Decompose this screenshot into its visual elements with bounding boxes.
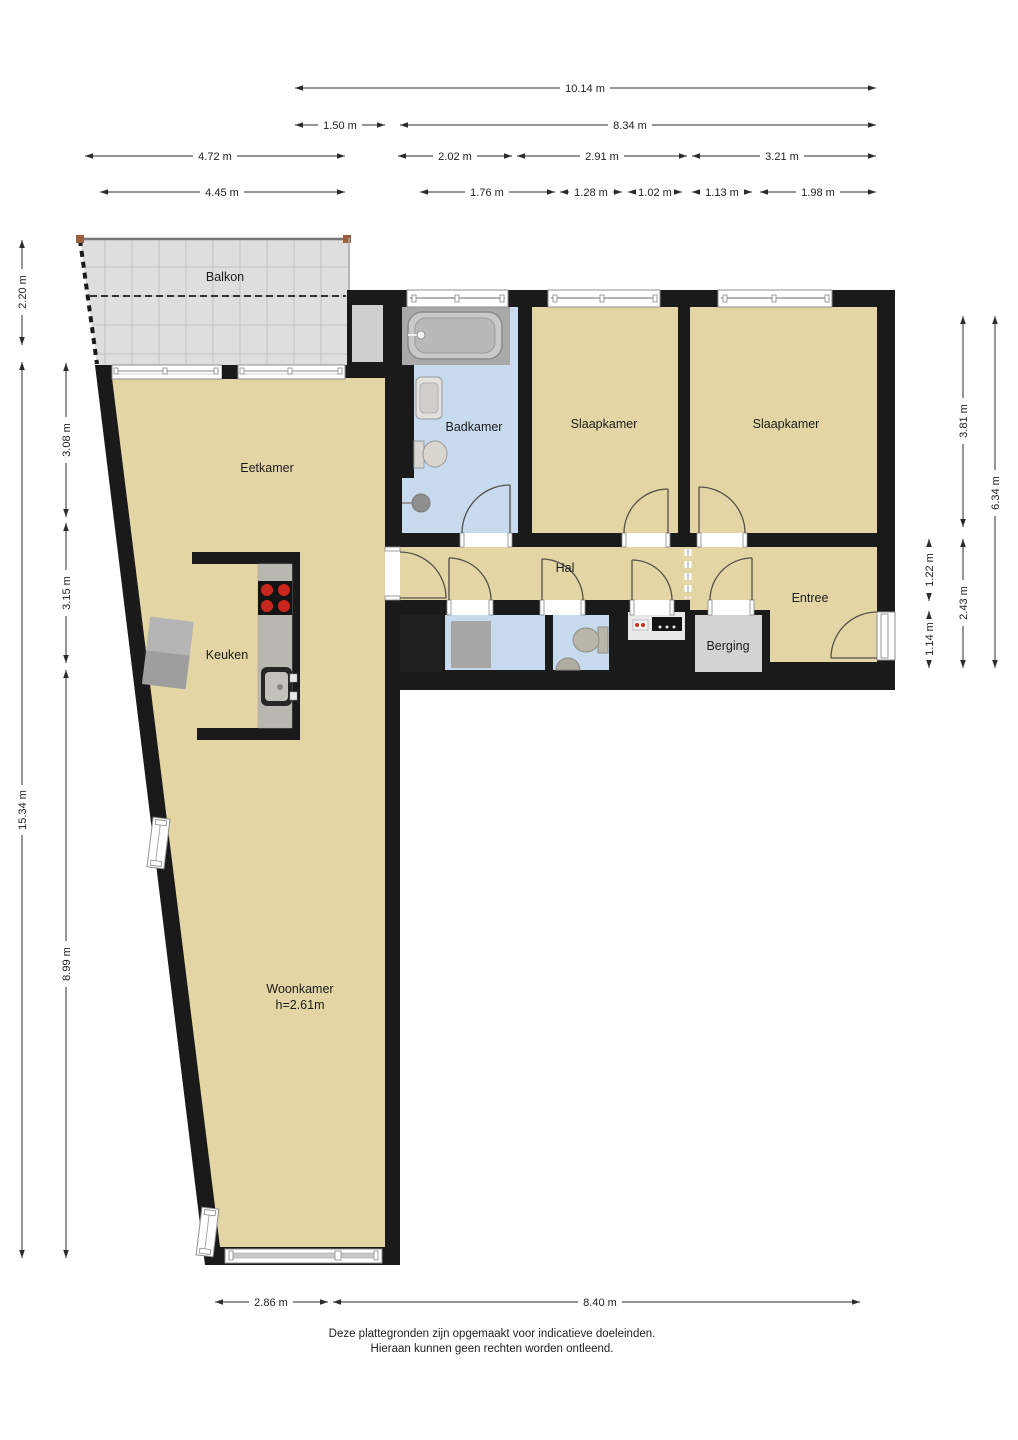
bathtub-faucet bbox=[417, 331, 425, 339]
dimension-arrowhead bbox=[19, 1250, 25, 1258]
dimension-arrowhead bbox=[19, 362, 25, 370]
dimension-label: 3.21 m bbox=[765, 151, 799, 163]
floorplan-page: Balkon Eetkamer Badkamer Slaapkamer Slaa… bbox=[0, 0, 1018, 1440]
kitchen-sink-basin bbox=[265, 672, 288, 701]
dimension-arrowhead bbox=[926, 660, 932, 668]
dimension-arrowhead bbox=[868, 122, 876, 128]
dimension-label: 10.14 m bbox=[565, 83, 605, 95]
room-label-slaapkamer-rechts: Slaapkamer bbox=[753, 417, 820, 431]
stove-burner bbox=[261, 600, 273, 612]
dimension-label: 8.99 m bbox=[61, 947, 73, 981]
dimension-arrowhead bbox=[674, 189, 682, 195]
dimension-label: 1.14 m bbox=[924, 622, 936, 656]
dimension-arrowhead bbox=[614, 189, 622, 195]
dimension-arrowhead bbox=[100, 189, 108, 195]
kitchen-sink-drain bbox=[277, 684, 283, 690]
dimension-label: 1.02 m bbox=[638, 187, 672, 199]
room-label-balkon: Balkon bbox=[206, 270, 244, 284]
disclaimer-line-2: Hieraan kunnen geen rechten worden ontle… bbox=[371, 1343, 614, 1355]
dimension-label: 2.91 m bbox=[585, 151, 619, 163]
entry-floor-lower bbox=[770, 610, 877, 662]
toilet-bowl bbox=[423, 441, 447, 467]
floorplan-svg: Balkon Eetkamer Badkamer Slaapkamer Slaa… bbox=[0, 0, 1018, 1440]
dimensions-left: 2.20 m 3.08 m 3.15 m 15.34 m 8.99 m bbox=[15, 240, 73, 1258]
dimension-label: 1.22 m bbox=[924, 553, 936, 587]
room-label-entree: Entree bbox=[792, 591, 829, 605]
dimension-arrowhead bbox=[992, 316, 998, 324]
dimension-arrowhead bbox=[868, 189, 876, 195]
dimension-arrowhead bbox=[868, 85, 876, 91]
dimension-arrowhead bbox=[992, 660, 998, 668]
dimension-arrowhead bbox=[547, 189, 555, 195]
dimension-arrowhead bbox=[19, 337, 25, 345]
dimension-arrowhead bbox=[679, 153, 687, 159]
dimension-arrowhead bbox=[926, 539, 932, 547]
dimension-arrowhead bbox=[377, 122, 385, 128]
dimension-arrowhead bbox=[692, 153, 700, 159]
dimension-label: 1.28 m bbox=[574, 187, 608, 199]
room-height-woonkamer: h=2.61m bbox=[276, 998, 325, 1012]
dimension-label: 1.76 m bbox=[470, 187, 504, 199]
dimension-label: 2.86 m bbox=[254, 1297, 288, 1309]
dimension-arrowhead bbox=[63, 363, 69, 371]
fuse-box bbox=[652, 617, 682, 631]
balcony bbox=[76, 235, 351, 365]
dimension-arrowhead bbox=[960, 660, 966, 668]
dimension-arrowhead bbox=[628, 189, 636, 195]
room-label-slaapkamer-links: Slaapkamer bbox=[571, 417, 638, 431]
stove-burner bbox=[261, 584, 273, 596]
dimension-arrowhead bbox=[852, 1299, 860, 1305]
room-label-eetkamer: Eetkamer bbox=[240, 461, 294, 475]
dimension-label: 2.43 m bbox=[958, 586, 970, 620]
dimension-label: 15.34 m bbox=[17, 790, 29, 830]
shower-drain bbox=[412, 494, 430, 512]
dimension-arrowhead bbox=[400, 122, 408, 128]
dimension-arrowhead bbox=[868, 153, 876, 159]
fuse-indicator bbox=[666, 626, 669, 629]
dimensions-right: 3.81 m 6.34 m 1.22 m 2.43 m 1.14 m bbox=[922, 316, 1002, 668]
dimension-label: 8.34 m bbox=[613, 120, 647, 132]
washbasin-bowl bbox=[420, 383, 438, 413]
dimension-label: 4.45 m bbox=[205, 187, 239, 199]
dimension-arrowhead bbox=[744, 189, 752, 195]
kitchen-tap bbox=[290, 692, 297, 700]
dimension-arrowhead bbox=[63, 1250, 69, 1258]
bathtub-basin bbox=[415, 318, 495, 353]
dimension-arrowhead bbox=[960, 539, 966, 547]
bathroom-inner-wall bbox=[402, 365, 414, 478]
kitchen-wall-top bbox=[192, 552, 298, 564]
dimension-label: 3.15 m bbox=[61, 576, 73, 610]
dimension-arrowhead bbox=[926, 611, 932, 619]
dimension-label: 3.81 m bbox=[958, 404, 970, 438]
dimension-arrowhead bbox=[63, 655, 69, 663]
room-label-keuken: Keuken bbox=[206, 648, 248, 662]
dimension-arrowhead bbox=[295, 85, 303, 91]
dimension-arrowhead bbox=[504, 153, 512, 159]
room-label-berging: Berging bbox=[706, 639, 749, 653]
dimensions-top: 10.14 m 1.50 m 8.34 m 4.72 m 2.02 m 2.91… bbox=[85, 81, 876, 199]
dimension-label: 8.40 m bbox=[583, 1297, 617, 1309]
dimension-arrowhead bbox=[85, 153, 93, 159]
dimension-arrowhead bbox=[19, 240, 25, 248]
fuse-indicator bbox=[673, 626, 676, 629]
dimension-arrowhead bbox=[960, 316, 966, 324]
dimension-label: 1.98 m bbox=[801, 187, 835, 199]
room-label-hal: Hal bbox=[556, 561, 575, 575]
dimension-label: 2.02 m bbox=[438, 151, 472, 163]
balcony-corner-post bbox=[76, 235, 84, 243]
meter-indicator bbox=[641, 623, 645, 627]
dimension-arrowhead bbox=[560, 189, 568, 195]
dimension-arrowhead bbox=[333, 1299, 341, 1305]
dimension-label: 1.13 m bbox=[705, 187, 739, 199]
room-label-woonkamer: Woonkamer bbox=[266, 982, 333, 996]
room-label-badkamer: Badkamer bbox=[446, 420, 503, 434]
dimension-label: 1.50 m bbox=[323, 120, 357, 132]
dimension-arrowhead bbox=[926, 593, 932, 601]
dimension-label: 2.20 m bbox=[17, 275, 29, 309]
hall-floor bbox=[400, 547, 690, 600]
dimensions-bottom: 2.86 m 8.40 m bbox=[215, 1295, 860, 1309]
dimension-arrowhead bbox=[63, 509, 69, 517]
dimension-arrowhead bbox=[692, 189, 700, 195]
front-door-frame bbox=[877, 612, 895, 660]
dimension-arrowhead bbox=[337, 189, 345, 195]
meter-indicator bbox=[635, 623, 639, 627]
dimension-arrowhead bbox=[420, 189, 428, 195]
fuse-indicator bbox=[659, 626, 662, 629]
dimension-arrowhead bbox=[63, 670, 69, 678]
dimension-arrowhead bbox=[337, 153, 345, 159]
dimension-arrowhead bbox=[517, 153, 525, 159]
toilet-bowl bbox=[573, 628, 599, 652]
dimension-arrowhead bbox=[215, 1299, 223, 1305]
washing-machine bbox=[451, 621, 491, 668]
dimension-label: 3.08 m bbox=[61, 423, 73, 457]
dimension-arrowhead bbox=[295, 122, 303, 128]
kitchen-tap bbox=[290, 674, 297, 682]
disclaimer-line-1: Deze plattegronden zijn opgemaakt voor i… bbox=[329, 1328, 656, 1340]
dimension-arrowhead bbox=[960, 519, 966, 527]
dark-closet bbox=[400, 615, 443, 672]
dimension-arrowhead bbox=[63, 523, 69, 531]
kitchen-wall-bottom bbox=[197, 728, 298, 740]
window-pier bbox=[222, 365, 238, 379]
dimension-arrowhead bbox=[760, 189, 768, 195]
dimension-arrowhead bbox=[398, 153, 406, 159]
shaft bbox=[352, 305, 383, 362]
dimension-arrowhead bbox=[320, 1299, 328, 1305]
kitchen-wall-right bbox=[292, 552, 300, 740]
dimension-label: 6.34 m bbox=[990, 476, 1002, 510]
balcony-corner-post bbox=[343, 235, 351, 243]
dimension-label: 4.72 m bbox=[198, 151, 232, 163]
stove-burner bbox=[278, 600, 290, 612]
balcony-floor bbox=[80, 238, 350, 365]
toilet-tank bbox=[414, 441, 424, 468]
exterior-unit bbox=[142, 617, 194, 690]
stove-burner bbox=[278, 584, 290, 596]
